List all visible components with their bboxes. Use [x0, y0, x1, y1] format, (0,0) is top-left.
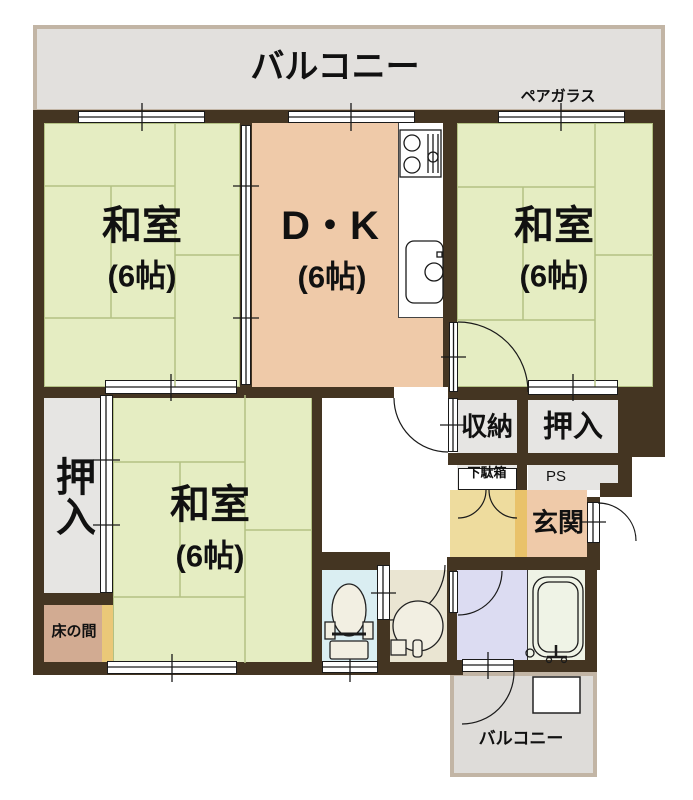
- label-dk: D・K: [281, 205, 379, 247]
- door-arc-entrance: [598, 503, 636, 541]
- pair-glass-note: ペアガラス: [521, 89, 596, 105]
- label-tokonoma: 床の間: [51, 624, 96, 640]
- label-washitsu-tl-size: (6帖): [108, 261, 177, 294]
- wall: [517, 463, 527, 490]
- kitchen-counter: [398, 123, 443, 318]
- wall: [33, 662, 463, 675]
- label-washitsu-bl-size: (6帖): [176, 541, 245, 574]
- window: [498, 111, 625, 123]
- sliding-door: [241, 125, 251, 385]
- floor-plan: バルコニー ペアガラス バルコニー: [0, 0, 693, 800]
- door-leaf: [462, 659, 514, 672]
- label-washitsu-tr: 和室: [514, 205, 594, 247]
- label-shuno: 収納: [461, 413, 513, 440]
- wall: [44, 593, 113, 605]
- wall: [448, 453, 632, 465]
- label-getabako: 下駄箱: [467, 466, 506, 480]
- label-ps: PS: [546, 469, 566, 485]
- room-washitsu-top-right: [457, 123, 653, 387]
- room-toilet: [322, 570, 377, 662]
- door-leaf: [449, 571, 458, 613]
- balcony-bottom-label: バルコニー: [479, 730, 564, 748]
- wall: [618, 387, 665, 457]
- window: [288, 111, 415, 123]
- wall: [653, 110, 665, 387]
- door-leaf: [377, 565, 390, 620]
- balcony-bottom: [450, 672, 597, 777]
- label-washitsu-tr-size: (6帖): [520, 261, 589, 294]
- hallway: [322, 395, 448, 552]
- window: [78, 111, 205, 123]
- tokonoma-strip: [102, 605, 113, 663]
- sliding-door: [100, 395, 113, 593]
- room-washitsu-bottom-left: [113, 395, 312, 663]
- label-washitsu-bl: 和室: [170, 484, 250, 526]
- door-leaf: [449, 322, 458, 392]
- label-oshiire-right: 押入: [543, 411, 603, 443]
- balcony-top-label: バルコニー: [250, 50, 419, 86]
- door-opening: [394, 387, 448, 398]
- room-bath: [527, 570, 585, 660]
- door-leaf: [448, 398, 458, 452]
- entry-step: [515, 490, 527, 558]
- wall: [447, 557, 600, 570]
- room-washitsu-top-left: [44, 123, 240, 387]
- entrance-door-leaf: [587, 502, 600, 543]
- label-washitsu-tl: 和室: [102, 205, 182, 247]
- room-washroom: [390, 570, 447, 662]
- window: [107, 661, 237, 674]
- wall: [600, 483, 632, 497]
- label-genkan: 玄関: [532, 509, 584, 536]
- label-dk-size: (6帖): [298, 262, 367, 295]
- sliding-door: [528, 380, 618, 395]
- wall: [312, 395, 322, 675]
- entry-hall: [450, 490, 515, 558]
- sliding-door: [105, 380, 237, 394]
- room-dressing: [457, 570, 527, 660]
- window: [322, 661, 378, 673]
- wall: [585, 570, 597, 672]
- label-oshiire-left: 押入: [51, 456, 93, 536]
